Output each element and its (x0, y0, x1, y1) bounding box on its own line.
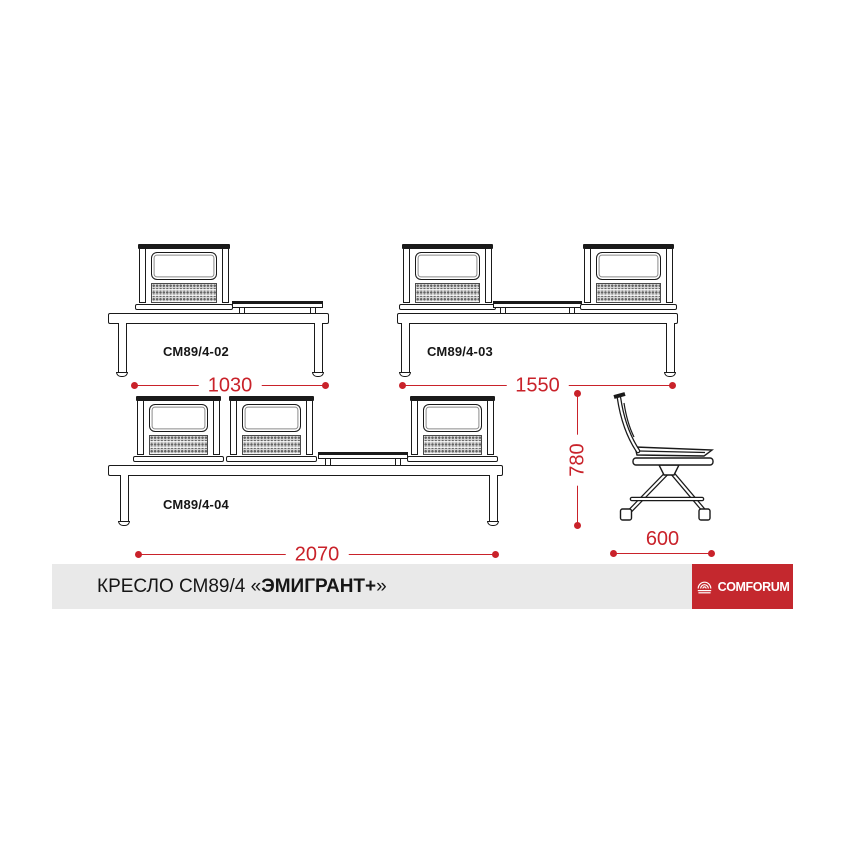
backrest-post (213, 400, 220, 455)
support-beam (108, 465, 503, 476)
mesh-panel (596, 283, 661, 303)
bench-foot (118, 521, 130, 526)
backrest-cap (402, 244, 493, 249)
support-beam (397, 313, 678, 324)
backrest-cushion (596, 252, 661, 280)
mesh-panel (149, 435, 208, 455)
backrest-post (584, 248, 591, 303)
bench-leg (314, 323, 323, 374)
table-top (232, 301, 323, 308)
support-beam (108, 313, 329, 324)
seat-edge (407, 456, 498, 462)
backrest-cap (138, 244, 230, 249)
dimension-value: 1030 (199, 376, 262, 397)
comforum-logo-icon (696, 579, 713, 595)
brand-name: COMFORUM (718, 580, 790, 594)
backrest-post (230, 400, 237, 455)
model-label: СМ89/4-03 (427, 344, 493, 359)
title-product-name: ЭМИГРАНТ+ (261, 576, 376, 597)
seat-back-unit (410, 396, 495, 462)
backrest-cushion (423, 404, 482, 432)
seat-back-unit (402, 244, 493, 310)
seat-edge (580, 304, 677, 310)
bench-foot (312, 372, 324, 377)
table-top (493, 301, 582, 308)
backrest-cushion (242, 404, 301, 432)
mesh-panel (151, 283, 217, 303)
page-title: КРЕСЛО СМ89/4 «ЭМИГРАНТ+» (97, 576, 387, 598)
title-suffix: » (376, 576, 387, 597)
dimension-value: 1550 (506, 376, 569, 397)
chair-side-view (600, 390, 720, 526)
seat-back-unit (229, 396, 314, 462)
product-spec-sheet: СМ89/4-02 1030 (0, 0, 855, 855)
backrest-cap (229, 396, 314, 401)
dimension-line-depth: 600 (612, 553, 713, 554)
bench-leg (666, 323, 675, 374)
backrest-cushion (149, 404, 208, 432)
seat-edge (399, 304, 496, 310)
bench-foot (664, 372, 676, 377)
bench-foot (116, 372, 128, 377)
backrest-post (137, 400, 144, 455)
dimension-line-width: 1550 (401, 385, 674, 386)
table-top (318, 452, 408, 459)
backrest-post (666, 248, 673, 303)
bench-table (318, 452, 408, 466)
backrest-post (222, 248, 229, 303)
dimension-value: 780 (568, 434, 589, 485)
backrest-cushion (151, 252, 217, 280)
backrest-cap (410, 396, 495, 401)
seat-edge (135, 304, 233, 310)
bench-leg (401, 323, 410, 374)
seat-edge (226, 456, 317, 462)
bench-leg (120, 475, 129, 523)
bench-foot (487, 521, 499, 526)
seat-back-unit (138, 244, 230, 310)
mesh-panel (423, 435, 482, 455)
bench-leg (118, 323, 127, 374)
backrest-post (487, 400, 494, 455)
mesh-panel (415, 283, 480, 303)
seat-back-unit (583, 244, 674, 310)
dimension-line-width: 1030 (133, 385, 327, 386)
footer-bar: КРЕСЛО СМ89/4 «ЭМИГРАНТ+» COMFORUM (52, 564, 793, 609)
title-prefix: КРЕСЛО СМ89/4 « (97, 576, 261, 597)
mesh-panel (242, 435, 301, 455)
dimension-line-height: 780 (577, 392, 578, 527)
model-label: СМ89/4-04 (163, 497, 229, 512)
backrest-post (139, 248, 146, 303)
backrest-post (411, 400, 418, 455)
backrest-cap (583, 244, 674, 249)
seat-edge (133, 456, 224, 462)
bench-foot (399, 372, 411, 377)
backrest-cushion (415, 252, 480, 280)
brand-logo: COMFORUM (692, 564, 793, 609)
backrest-post (306, 400, 313, 455)
dimension-value: 600 (646, 529, 679, 549)
bench-leg (489, 475, 498, 523)
seat-back-unit (136, 396, 221, 462)
dimension-value: 2070 (286, 545, 349, 566)
backrest-post (403, 248, 410, 303)
backrest-post (485, 248, 492, 303)
backrest-cap (136, 396, 221, 401)
dimension-line-width: 2070 (137, 554, 497, 555)
model-label: СМ89/4-02 (163, 344, 229, 359)
